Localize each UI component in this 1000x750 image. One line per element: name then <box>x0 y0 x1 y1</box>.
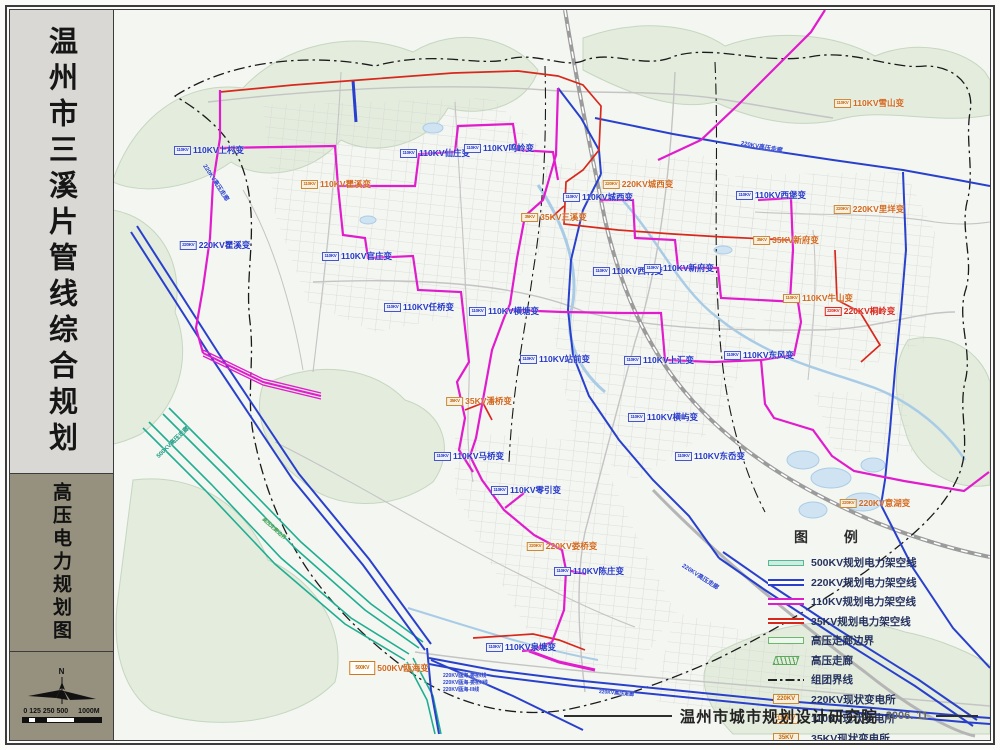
scale-ticks: 0 125 250 500 1000M <box>23 708 99 715</box>
legend-label: 高压走廊 <box>811 653 853 668</box>
substation-marker: 110KV <box>783 294 800 303</box>
substation-marker: 110KV <box>384 303 401 312</box>
corridor-annotation: 220KV瓯海-III线 <box>443 686 479 693</box>
corridor-annotation: 高压走廊边界 <box>261 516 288 541</box>
legend-item: 高压走廊 <box>768 651 978 671</box>
substation-name: 110KV泉塘变 <box>505 641 556 653</box>
substation-label: 110KV110KV横塘变 <box>469 305 539 317</box>
substation-name: 110KV牛山变 <box>802 292 853 304</box>
substation-marker: 110KV <box>834 99 851 108</box>
legend-swatch-cluster-boundary <box>768 679 804 681</box>
substation-marker: 35KV <box>521 213 538 222</box>
corridor-annotation: 220KV瓯海-娄桥I线 <box>443 672 486 679</box>
substation-label: 110KV110KV仙庄变 <box>400 147 470 159</box>
substation-marker: 220KV <box>834 205 851 214</box>
attribution-rule-right <box>936 715 978 717</box>
legend-swatch-line-500kv <box>768 560 804 566</box>
substation-name: 35KV新府变 <box>772 234 819 246</box>
substation-name: 110KV横屿变 <box>647 411 698 423</box>
legend-label: 组团界线 <box>811 672 853 687</box>
substation-name: 220KV桐岭变 <box>844 305 896 317</box>
substation-name: 220KV娄桥变 <box>546 540 598 552</box>
substation-marker: 110KV <box>593 267 610 276</box>
substation-label: 110KV110KV横屿变 <box>628 411 698 423</box>
substation-marker: 110KV <box>520 355 537 364</box>
substation-label: 220KV220KV意湖变 <box>840 497 911 509</box>
substation-marker: 220KV <box>180 241 197 250</box>
substation-name: 220KV里垟变 <box>853 203 905 215</box>
substation-label: 110KV110KV陈庄变 <box>554 565 624 577</box>
substation-name: 110KV城西变 <box>582 191 633 203</box>
substation-name: 110KV马桥变 <box>453 450 504 462</box>
substation-name: 110KV仙庄变 <box>419 147 470 159</box>
substation-label: 110KV110KV零引变 <box>491 484 561 496</box>
substation-label: 220KV220KV瞿溪变 <box>180 239 251 251</box>
substation-marker: 110KV <box>554 567 571 576</box>
substation-marker: 110KV <box>675 452 692 461</box>
substation-marker: 110KV <box>469 307 486 316</box>
substation-label: 35KV35KV新府变 <box>753 234 819 246</box>
substation-name: 110KV零引变 <box>510 484 561 496</box>
legend-swatch-corridor-boundary <box>768 637 804 644</box>
substation-marker: 110KV <box>301 180 318 189</box>
north-arrow-icon <box>22 676 102 706</box>
substation-label: 110KV110KV新府变 <box>644 262 714 274</box>
substation-marker: 110KV <box>322 252 339 261</box>
corridor-annotation: 220KV瓯海-娄桥II线 <box>443 679 488 686</box>
substation-marker: 110KV <box>400 149 417 158</box>
substation-marker: 110KV <box>486 643 503 652</box>
scale-end: 1000M <box>78 708 99 715</box>
sheet-subtitle: 高压电力规划图 <box>48 482 75 643</box>
substation-marker: 35KV <box>753 236 770 245</box>
substation-marker: 110KV <box>624 356 641 365</box>
agency-name: 温州市城市规划设计研究院 <box>680 705 878 727</box>
substation-marker: 220KV <box>840 499 857 508</box>
substation-label: 110KV110KV鸣岭变 <box>464 142 534 154</box>
substation-name: 110KV上村变 <box>193 144 244 156</box>
sidebar: 温州市三溪片管线综合规划 高压电力规划图 N 0 125 250 500 100… <box>10 10 114 740</box>
substation-name: 35KV潘桥变 <box>465 395 512 407</box>
substation-marker: 110KV <box>464 144 481 153</box>
substation-name: 220KV城西变 <box>622 178 674 190</box>
substation-label: 110KV110KV瞿溪变 <box>301 178 371 190</box>
substation-name: 110KV横塘变 <box>488 305 539 317</box>
corridor-annotation: 220KV高压走廊 <box>201 162 232 202</box>
substation-name: 110KV陈庄变 <box>573 565 624 577</box>
substation-label: 220KV220KV里垟变 <box>834 203 905 215</box>
sheet-title: 温州市三溪片管线综合规划 <box>41 26 83 458</box>
legend-item: 35KV规划电力架空线 <box>768 612 978 632</box>
legend-swatch-box-existing: 35KV <box>773 733 799 740</box>
substation-name: 110KV东岙变 <box>694 450 745 462</box>
substation-marker: 500KV <box>349 661 375 675</box>
legend-item: 220KV规划电力架空线 <box>768 573 978 593</box>
substation-label: 220KV220KV城西变 <box>603 178 674 190</box>
corridor-annotation: 220KV高压走廊 <box>740 138 783 154</box>
substation-label: 35KV35KV三溪变 <box>521 211 587 223</box>
substation-marker: 110KV <box>628 413 645 422</box>
corridor-annotation: 220KV高压走廊 <box>599 688 635 698</box>
attribution: 温州市城市规划设计研究院 2006. 11 <box>564 705 978 727</box>
legend-swatch-line-110kv <box>768 598 804 605</box>
legend-label: 35KV规划电力架空线 <box>811 614 911 629</box>
plan-date: 2006. 11 <box>886 710 928 722</box>
substation-label: 110KV110KV东岙变 <box>675 450 745 462</box>
substation-name: 110KV瞿溪变 <box>320 178 371 190</box>
legend-swatch-corridor <box>773 656 800 665</box>
substation-marker: 110KV <box>174 146 191 155</box>
legend-item: 35KV35KV现状变电所 <box>768 729 978 741</box>
substation-marker: 110KV <box>563 193 580 202</box>
legend-item: 高压走廊边界 <box>768 631 978 651</box>
substation-label: 110KV110KV任桥变 <box>384 301 454 313</box>
substation-marker: 110KV <box>491 486 508 495</box>
substation-marker: 110KV <box>736 191 753 200</box>
substation-name: 220KV意湖变 <box>859 497 911 509</box>
plan-sheet: 温州市三溪片管线综合规划 高压电力规划图 N 0 125 250 500 100… <box>0 0 1000 750</box>
substation-marker: 110KV <box>644 264 661 273</box>
substation-name: 220KV瞿溪变 <box>199 239 251 251</box>
substation-label: 220KV220KV娄桥变 <box>527 540 598 552</box>
sheet-subtitle-block: 高压电力规划图 <box>10 474 113 652</box>
substation-label: 110KV110KV站前变 <box>520 353 590 365</box>
legend-swatch-line-35kv <box>768 618 804 624</box>
substation-name: 110KV鸣岭变 <box>483 142 534 154</box>
substation-marker: 220KV <box>825 307 842 316</box>
substation-marker: 110KV <box>434 452 451 461</box>
corridor-annotation: 500KV高压走廊 <box>154 424 191 460</box>
substation-name: 110KV任桥变 <box>403 301 454 313</box>
substation-label: 500KV500KV瓯海变 <box>349 661 429 675</box>
scale-bar <box>22 717 102 723</box>
substation-label: 35KV35KV潘桥变 <box>446 395 512 407</box>
substation-name: 110KV站前变 <box>539 353 590 365</box>
substation-label: 110KV110KV泉塘变 <box>486 641 556 653</box>
legend-label: 110KV规划电力架空线 <box>811 594 916 609</box>
legend-item: 110KV规划电力架空线 <box>768 592 978 612</box>
substation-label: 220KV220KV桐岭变 <box>825 305 896 317</box>
legend-label: 35KV现状变电所 <box>811 731 890 740</box>
substation-label: 110KV110KV雪山变 <box>834 97 904 109</box>
legend-swatch-box-existing: 220KV <box>773 694 799 704</box>
legend-label: 500KV规划电力架空线 <box>811 555 917 570</box>
substation-name: 500KV瓯海变 <box>377 662 429 674</box>
compass-scale-block: N 0 125 250 500 1000M <box>10 652 113 740</box>
legend-label: 220KV规划电力架空线 <box>811 575 917 590</box>
substation-marker: 220KV <box>603 180 620 189</box>
legend-title: 图 例 <box>794 527 978 547</box>
substation-name: 110KV官庄变 <box>341 250 392 262</box>
legend-item: 组团界线 <box>768 670 978 690</box>
scale-numbers: 0 125 250 500 <box>23 708 68 715</box>
substation-marker: 110KV <box>724 351 741 360</box>
legend-swatch-line-220kv <box>768 579 804 586</box>
substation-label: 110KV110KV马桥变 <box>434 450 504 462</box>
substation-name: 35KV三溪变 <box>540 211 587 223</box>
substation-label: 110KV110KV城西变 <box>563 191 633 203</box>
substation-label: 110KV110KV官庄变 <box>322 250 392 262</box>
substation-name: 110KV西堡变 <box>755 189 806 201</box>
substation-label: 110KV110KV牛山变 <box>783 292 853 304</box>
substation-label: 110KV110KV上村变 <box>174 144 244 156</box>
substation-name: 110KV新府变 <box>663 262 714 274</box>
substation-label: 110KV110KV东风变 <box>724 349 794 361</box>
corridor-annotation: 220KV高压走廊 <box>681 561 721 592</box>
attribution-rule-left <box>564 715 672 717</box>
map-canvas: 110KV110KV上村变110KV110KV仙庄变110KV110KV鸣岭变1… <box>113 10 990 740</box>
north-label: N <box>59 669 65 674</box>
legend-label: 高压走廊边界 <box>811 633 874 648</box>
legend-item: 500KV规划电力架空线 <box>768 553 978 573</box>
substation-name: 110KV雪山变 <box>853 97 904 109</box>
substation-name: 110KV东风变 <box>743 349 794 361</box>
substation-marker: 220KV <box>527 542 544 551</box>
substation-marker: 35KV <box>446 397 463 406</box>
substation-label: 110KV110KV西堡变 <box>736 189 806 201</box>
substation-label: 110KV110KV上汇变 <box>624 354 694 366</box>
sheet-title-block: 温州市三溪片管线综合规划 <box>10 10 113 474</box>
substation-name: 110KV上汇变 <box>643 354 694 366</box>
